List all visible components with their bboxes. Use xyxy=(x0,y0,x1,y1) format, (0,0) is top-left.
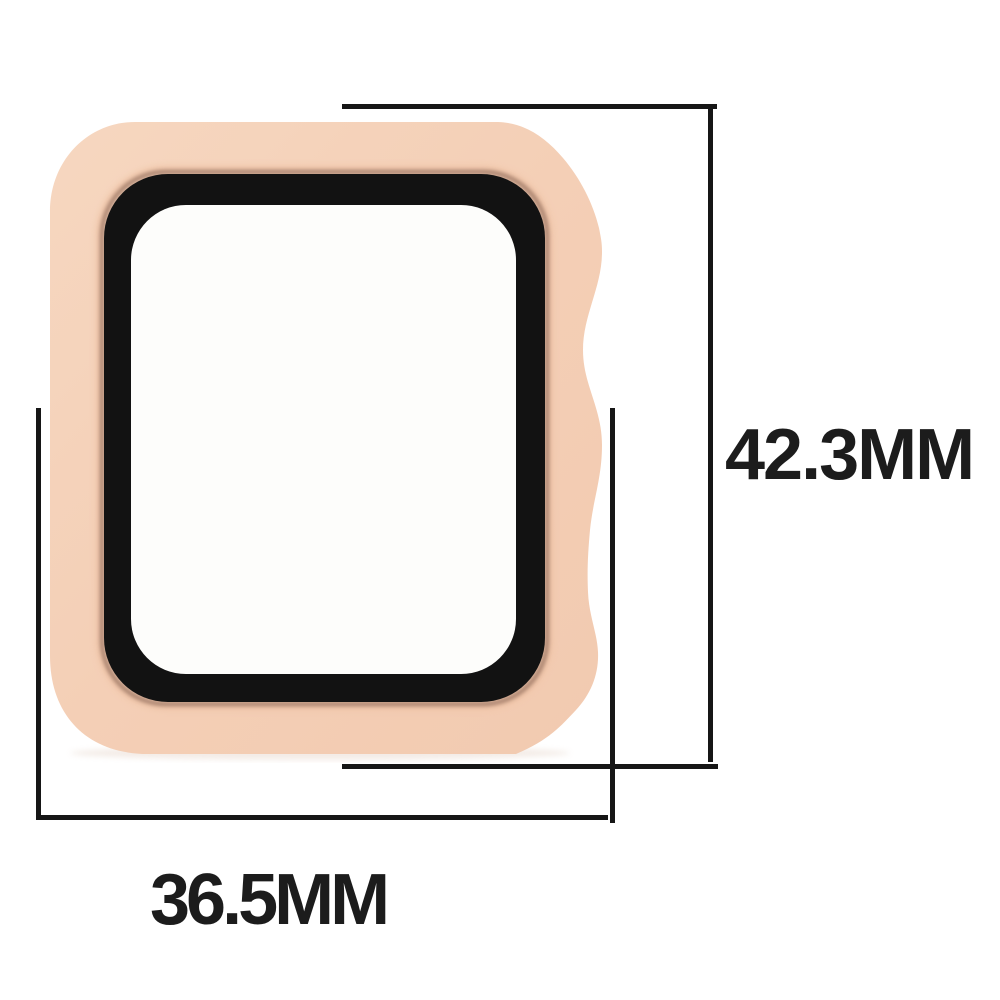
svg-text:36.5MM: 36.5MM xyxy=(150,860,386,940)
svg-text:42.3MM: 42.3MM xyxy=(725,415,973,495)
